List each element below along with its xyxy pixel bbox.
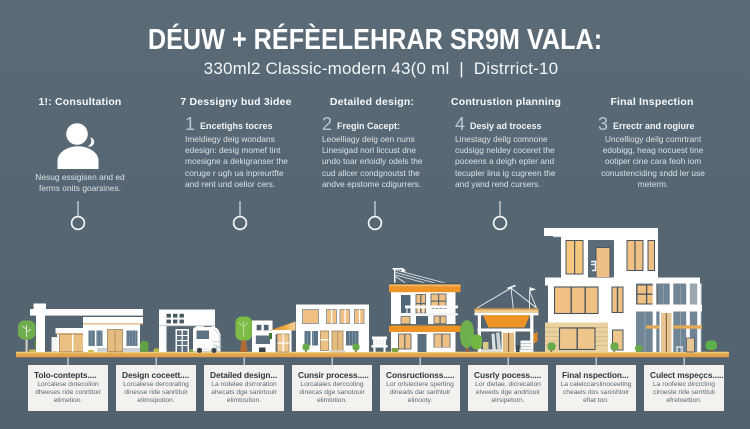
- svg-text:2km: 2km: [213, 345, 222, 351]
